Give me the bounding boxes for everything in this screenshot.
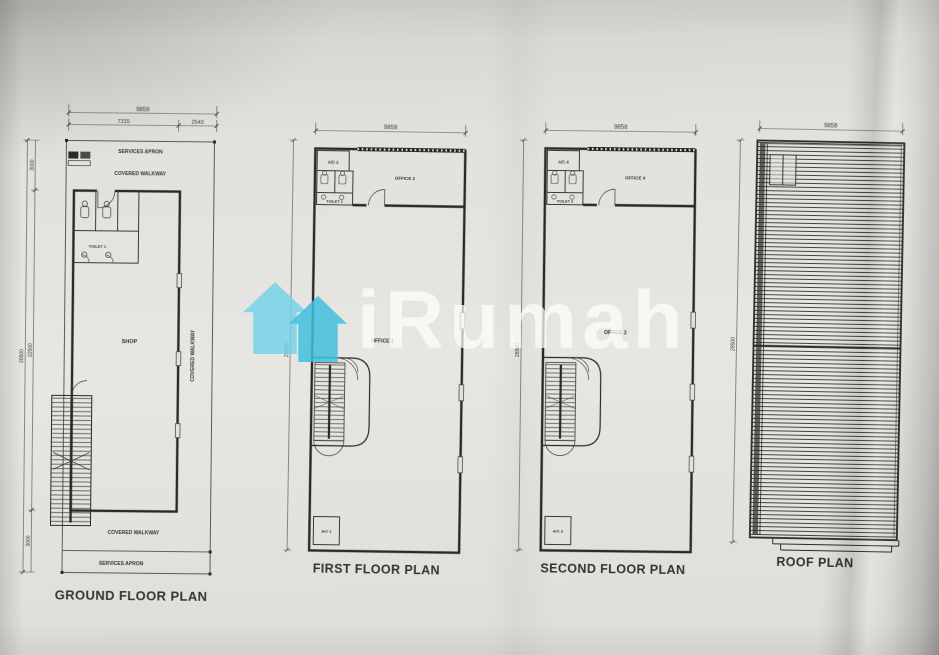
ground-toilet-block — [73, 191, 139, 264]
ground-floor-title: GROUND FLOOR PLAN — [55, 587, 208, 604]
second-label-ac-bottom: A/C 3 — [553, 528, 564, 533]
ground-floor-drawing: 9858 7315 2543 28500 3000 22500 3000 — [19, 92, 244, 614]
ground-entrance-gap — [97, 187, 115, 194]
roof-plan-drawing: 9858 28500 ROOF PLAN — [726, 112, 930, 576]
second-label-office-top: OFFICE 4 — [625, 175, 646, 180]
first-louvre-band — [357, 149, 465, 151]
second-floor-title: SECOND FLOOR PLAN — [540, 561, 685, 577]
ground-label-services-apron-bottom: SERVICES APRON — [99, 561, 144, 567]
ground-dim-width-left: 7315 — [118, 119, 130, 125]
roof-plan: 9858 28500 ROOF PLAN — [726, 112, 930, 576]
second-label-toilet: TOILET 3 — [557, 200, 574, 204]
irumah-logo-icon — [243, 278, 355, 370]
roof-sheet-hatch — [750, 140, 905, 540]
roof-access-hatch — [770, 155, 797, 185]
first-label-office-top: OFFICE 2 — [395, 176, 416, 181]
first-label-ac-top: A/C 2 — [328, 160, 339, 165]
second-label-ac-top: A/C 4 — [558, 160, 569, 165]
ground-floor-plan: 9858 7315 2543 28500 3000 22500 3000 — [19, 92, 244, 614]
ground-label-covered-walkway-right: COVERED WALKWAY — [190, 329, 197, 381]
first-dividing-wall — [352, 189, 464, 210]
roof-dim-height: 28500 — [730, 337, 736, 351]
ground-dim-height-total: 28500 — [19, 349, 25, 363]
photographed-floor-plan-sheet: 9858 7315 2543 28500 3000 22500 3000 — [0, 0, 939, 655]
ground-staircase — [50, 380, 92, 525]
ground-label-services-apron-top: SERVICES APRON — [118, 149, 163, 155]
ground-dim-height-bottom: 3000 — [26, 535, 32, 546]
first-dim-width: 9858 — [384, 125, 398, 131]
roof-plan-title: ROOF PLAN — [776, 555, 853, 570]
ground-dim-width-right: 2543 — [192, 120, 204, 126]
ground-dim-height-inner: 22500 — [28, 343, 34, 357]
second-staircase — [542, 357, 601, 456]
ground-label-shop: SHOP — [122, 339, 138, 345]
second-louvre-band — [588, 149, 696, 150]
irumah-watermark: iRumah — [243, 278, 688, 370]
irumah-brand-text: iRumah — [357, 278, 688, 364]
roof-dim-width: 9858 — [824, 123, 838, 129]
ground-meter-compartments — [68, 151, 90, 165]
first-label-ac-bottom: A/C 1 — [321, 529, 332, 534]
second-dim-width: 9858 — [614, 125, 628, 131]
first-floor-title: FIRST FLOOR PLAN — [313, 561, 440, 577]
second-dividing-wall — [583, 189, 695, 209]
first-label-toilet: TOILET 2 — [326, 200, 343, 204]
ground-label-covered-walkway-top: COVERED WALKWAY — [114, 171, 166, 178]
ground-label-covered-walkway-bottom: COVERED WALKWAY — [107, 530, 159, 537]
ground-dim-width-total: 9858 — [136, 107, 150, 113]
ground-label-toilet: TOILET 1 — [89, 244, 107, 249]
first-staircase — [311, 357, 371, 456]
ground-dim-height-top: 3000 — [30, 159, 36, 170]
